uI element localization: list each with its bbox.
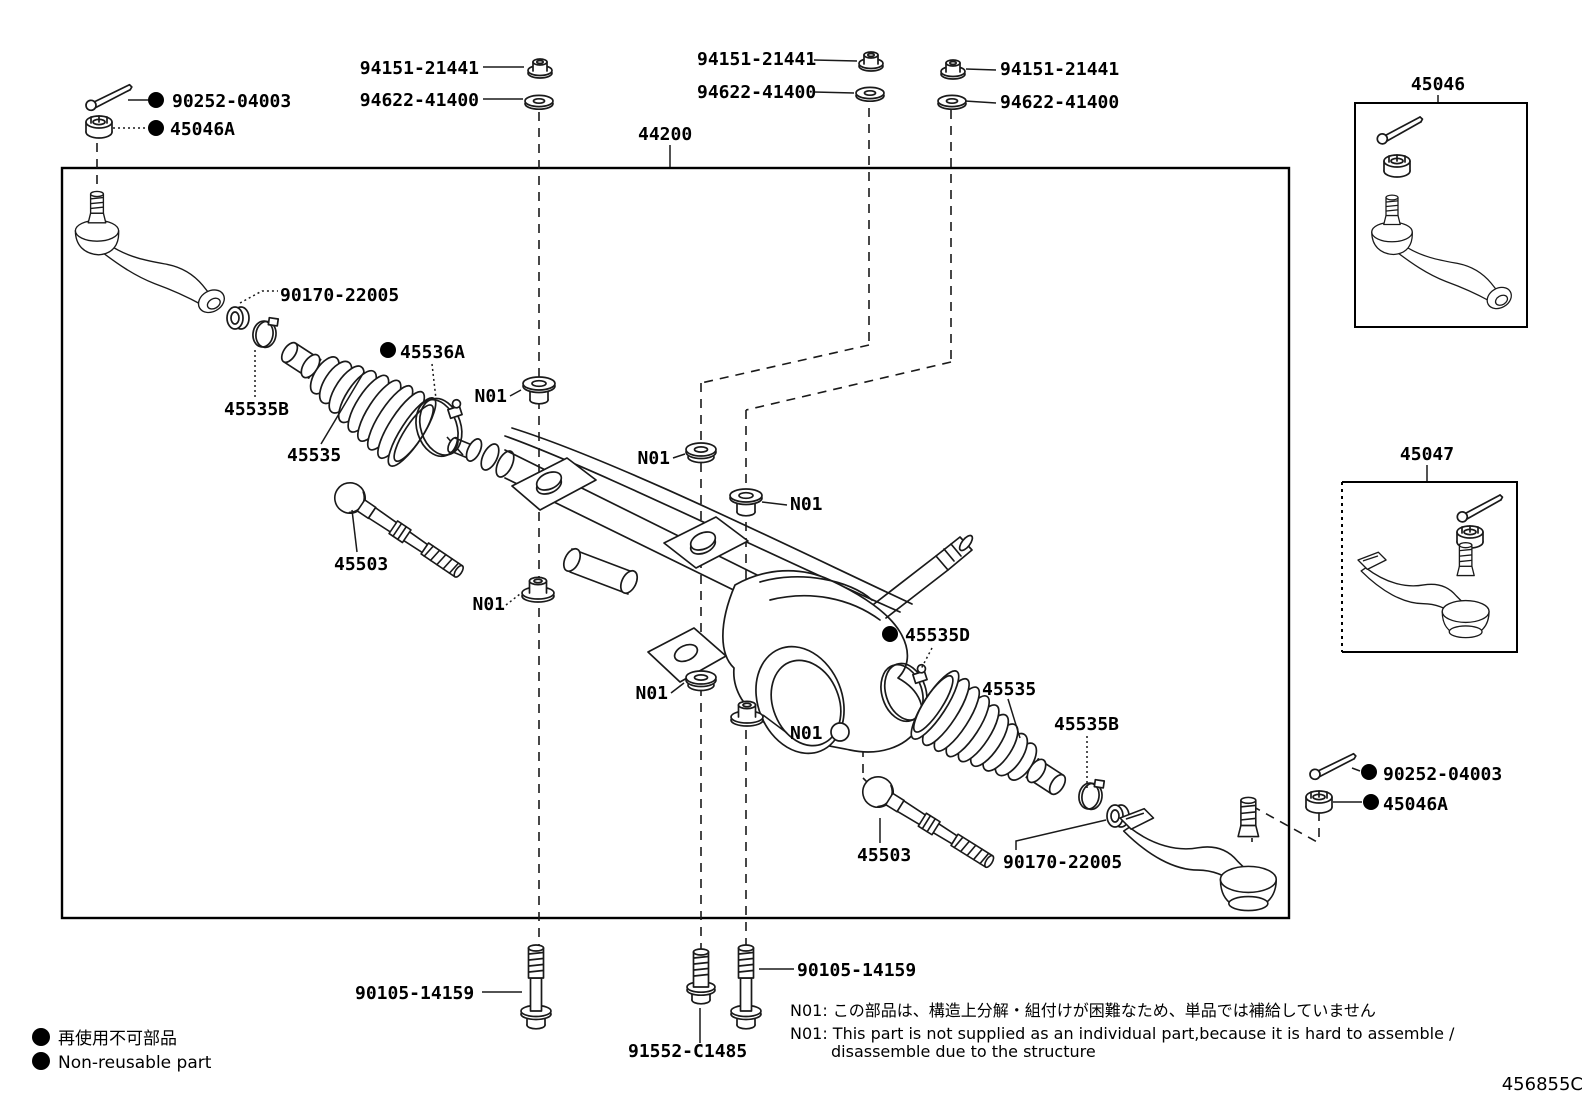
label-boot-45535-right: 45535 (982, 679, 1036, 700)
parts-diagram: 94151-2144194622-4140090252-0400345046A9… (0, 0, 1592, 1099)
non-reusable-dot-icon (1361, 764, 1377, 780)
washer-94622-mid (856, 87, 884, 101)
tie-rod-end-45047 (1358, 543, 1489, 638)
castle-nut-topleft (86, 116, 112, 138)
legend-non-reusable-en: Non-reusable part (58, 1053, 212, 1073)
label-nut-45046A-botright: 45046A (1383, 794, 1448, 815)
label-n01-6: N01 (790, 723, 823, 744)
non-reusable-dot-icon (148, 92, 164, 108)
label-n01-1: N01 (474, 386, 507, 407)
label-collar-right: 90170-22005 (1003, 852, 1122, 873)
flange-nut-94151-mid (859, 52, 883, 71)
label-washer-94622-mid: 94622-41400 (697, 82, 816, 103)
label-washer-94622-right: 94622-41400 (1000, 92, 1119, 113)
bolt-90105-right (731, 945, 761, 1029)
drawing-code: 456855C (1502, 1074, 1583, 1095)
flange-nut-94151-right (941, 60, 965, 79)
label-boot-45535-left: 45535 (287, 445, 341, 466)
bolt-90105-left (521, 945, 551, 1029)
non-reusable-dot-icon (882, 626, 898, 642)
label-clamp-45536A: 45536A (400, 342, 465, 363)
label-clamp-45535D: 45535D (905, 625, 970, 646)
non-reusable-dot-icon (32, 1052, 50, 1070)
label-nut-94151-mid: 94151-21441 (697, 49, 816, 70)
label-n01-5: N01 (635, 683, 668, 704)
tie-rod-end-45046 (1372, 195, 1515, 313)
label-n01-4: N01 (472, 594, 505, 615)
label-clamp-45535B-right: 45535B (1054, 714, 1119, 735)
label-clamp-45535B-left: 45535B (224, 399, 289, 420)
label-rack-44200: 44200 (638, 124, 692, 145)
collar-90170-left (227, 307, 249, 329)
label-washer-94622-left: 94622-41400 (360, 90, 479, 111)
bolt-91552 (687, 949, 715, 1004)
label-n01-3: N01 (790, 494, 823, 515)
non-reusable-dot-icon (1363, 794, 1379, 810)
castle-nut-botright (1306, 791, 1332, 813)
diagram-canvas: 94151-2144194622-4140090252-0400345046A9… (0, 0, 1592, 1099)
grommet-n01-5 (686, 671, 716, 691)
note-n01-japanese: N01: この部品は、構造上分解・組付けが困難なため、単品では補給していません (790, 1001, 1376, 1020)
flange-nut-94151-left (528, 59, 552, 78)
label-bolt-90105-left: 90105-14159 (355, 983, 474, 1004)
grommet-n01-1 (523, 377, 555, 404)
label-nut-94151-left: 94151-21441 (360, 58, 479, 79)
castle-nut-45046-box (1384, 155, 1410, 177)
tie-rod-end-left (75, 191, 228, 317)
cotter-pin-45046-box (1375, 117, 1426, 145)
cotter-pin-topleft (84, 84, 134, 110)
note-n01-english-line1: N01: This part is not supplied as an ind… (790, 1024, 1455, 1043)
label-nut-94151-right: 94151-21441 (1000, 59, 1119, 80)
grommet-n01-3 (730, 489, 762, 516)
washer-94622-left (525, 95, 553, 109)
cotter-pin-botright (1308, 753, 1358, 779)
legend-non-reusable-jp: 再使用不可部品 (58, 1028, 177, 1049)
clamp-45535B-right (1077, 778, 1104, 811)
non-reusable-dot-icon (148, 120, 164, 136)
label-inset-45046: 45046 (1411, 74, 1465, 95)
label-nut-45046A-topleft: 45046A (170, 119, 235, 140)
label-bolt-90105-right: 90105-14159 (797, 960, 916, 981)
cotter-pin-45047-box (1455, 495, 1506, 523)
non-reusable-dot-icon (32, 1028, 50, 1046)
grommet-n01-4 (522, 577, 554, 602)
label-collar-left: 90170-22005 (280, 285, 399, 306)
washer-94622-right (938, 95, 966, 109)
tie-rod-end-right (1120, 797, 1276, 910)
label-inset-45047: 45047 (1400, 444, 1454, 465)
note-n01-english-line2: disassemble due to the structure (831, 1042, 1096, 1061)
non-reusable-dot-icon (380, 342, 396, 358)
grommet-n01-2 (686, 443, 716, 463)
label-bolt-91552: 91552-C1485 (628, 1041, 747, 1062)
label-innerrod-45503-right: 45503 (857, 845, 911, 866)
label-cotter-90252-botright: 90252-04003 (1383, 764, 1502, 785)
label-n01-2: N01 (637, 448, 670, 469)
parts-layer (75, 52, 1515, 1029)
label-cotter-90252-topleft: 90252-04003 (172, 91, 291, 112)
clamp-45535B-left (251, 316, 278, 349)
label-innerrod-45503-left: 45503 (334, 554, 388, 575)
